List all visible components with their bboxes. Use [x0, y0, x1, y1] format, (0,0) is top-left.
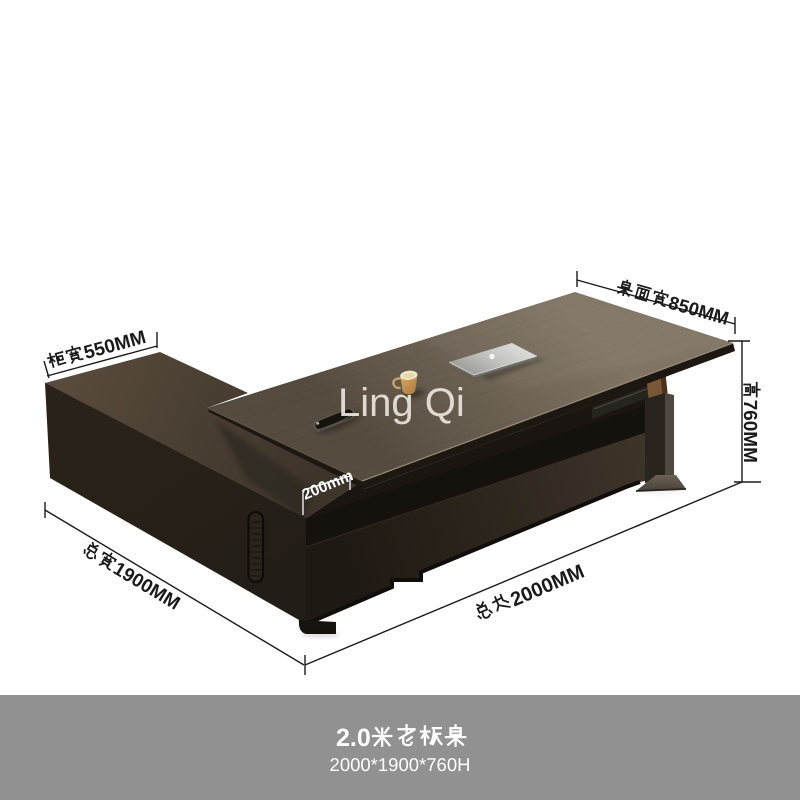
svg-text:2000*1900*760H: 2000*1900*760H: [330, 754, 471, 775]
svg-text:2.0: 2.0: [336, 724, 371, 752]
svg-text:Ling Qi: Ling Qi: [338, 381, 465, 425]
svg-text:760MM: 760MM: [739, 400, 760, 463]
